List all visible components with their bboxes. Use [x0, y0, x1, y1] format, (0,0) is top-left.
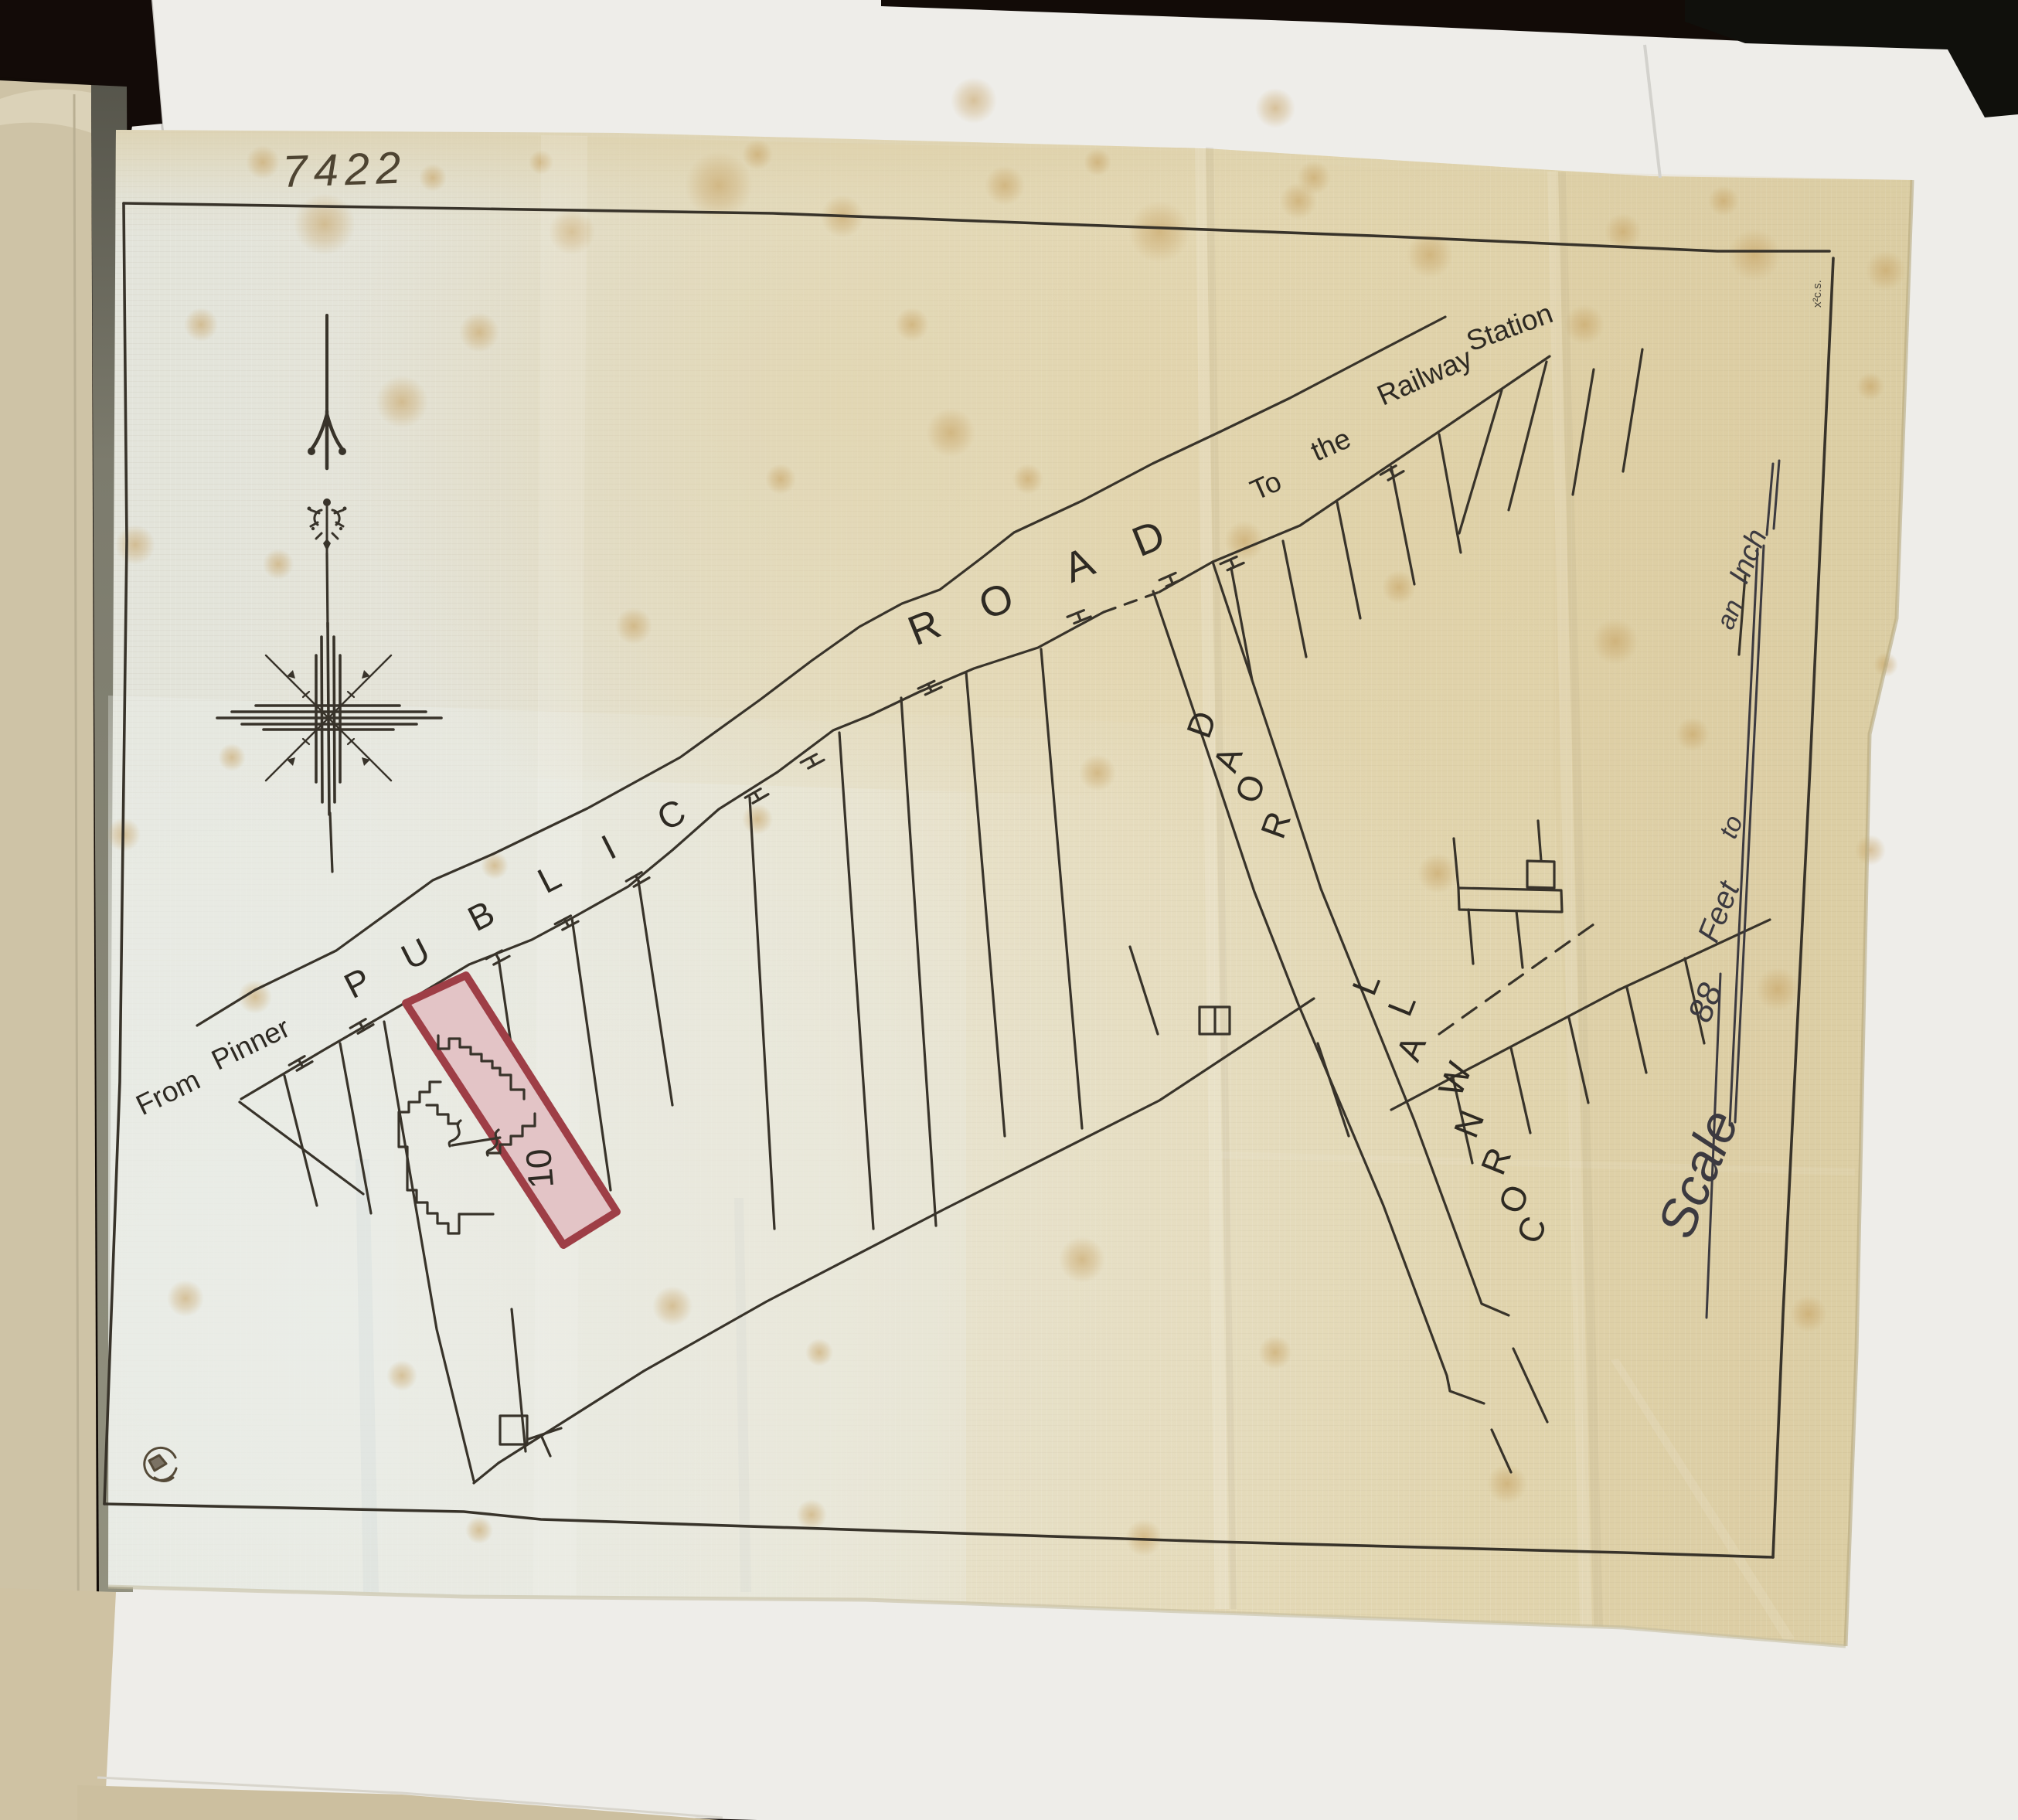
svg-text:10: 10: [518, 1147, 561, 1190]
svg-text:7422: 7422: [281, 142, 407, 197]
svg-text:x²c.s.: x²c.s.: [1811, 280, 1824, 308]
